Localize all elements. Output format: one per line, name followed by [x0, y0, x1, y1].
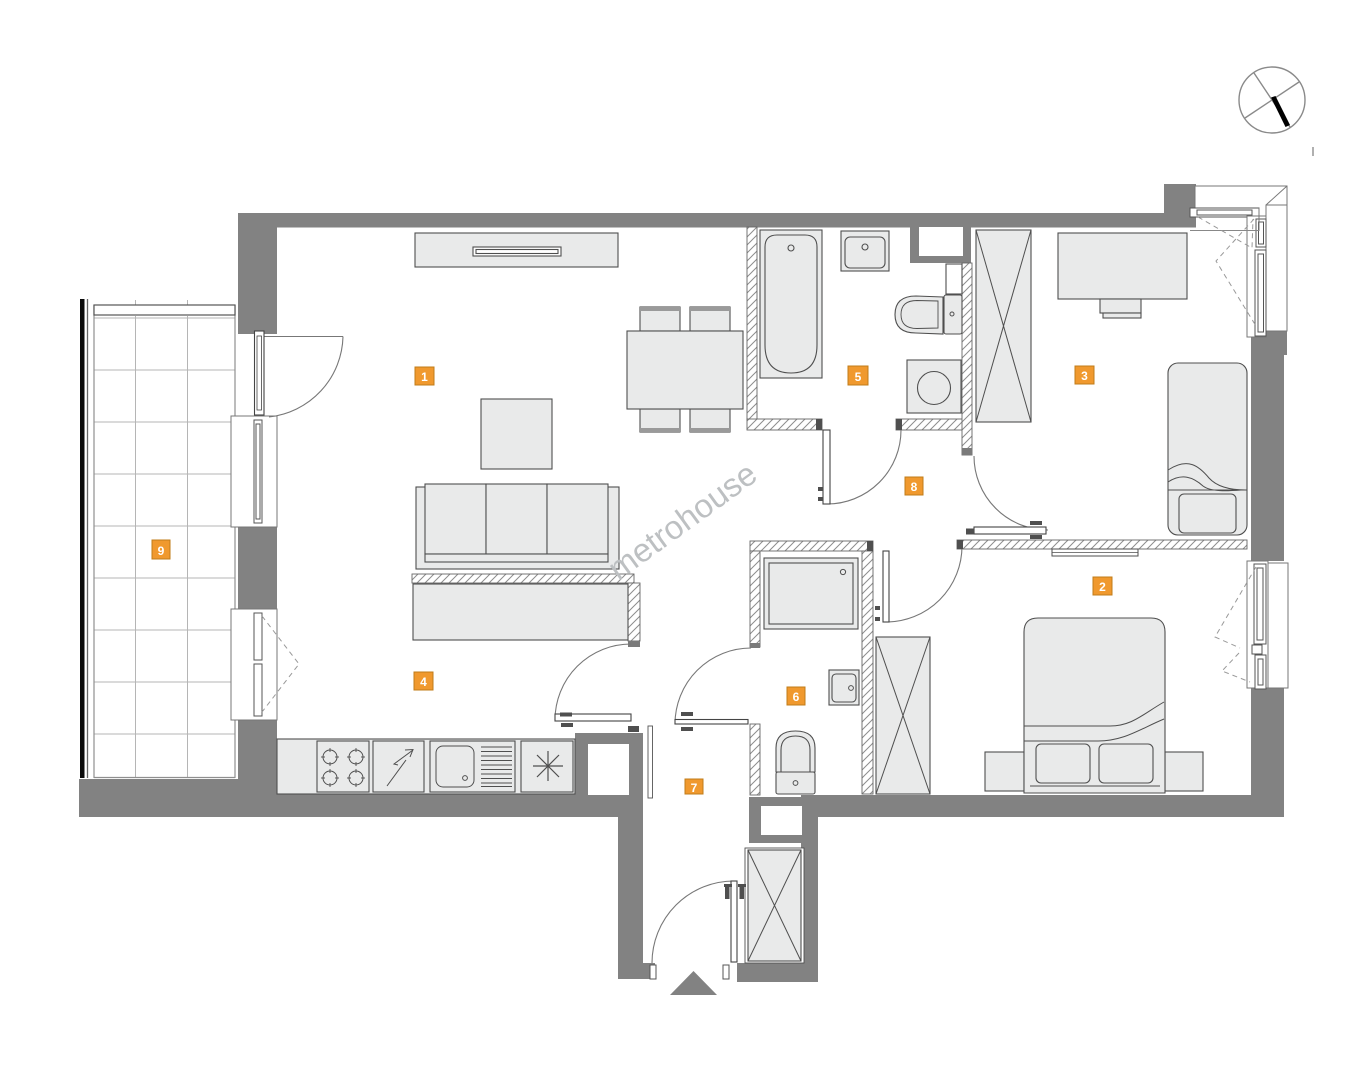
svg-text:4: 4 [420, 675, 427, 689]
svg-text:7: 7 [691, 781, 698, 795]
svg-text:2: 2 [1099, 580, 1106, 594]
svg-text:8: 8 [911, 480, 918, 494]
svg-text:metrohouse: metrohouse [601, 455, 764, 587]
svg-text:6: 6 [793, 690, 800, 704]
svg-text:9: 9 [158, 544, 165, 558]
svg-text:1: 1 [421, 370, 428, 384]
svg-text:3: 3 [1081, 369, 1088, 383]
svg-text:5: 5 [855, 370, 862, 384]
